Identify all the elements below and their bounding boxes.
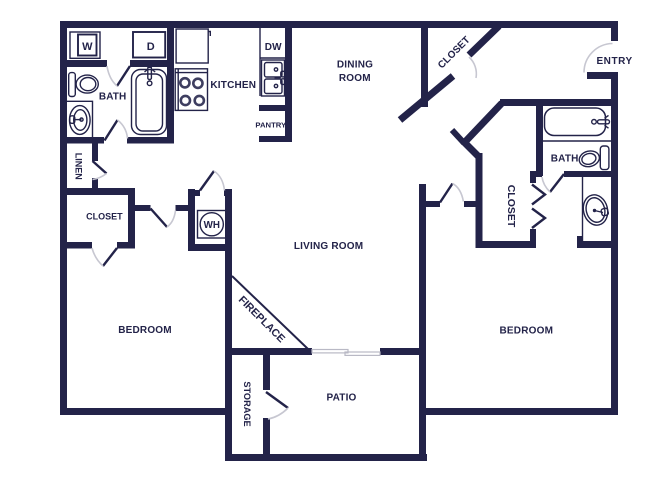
- svg-text:ENTRY: ENTRY: [596, 56, 632, 67]
- svg-text:CLOSET: CLOSET: [505, 185, 517, 228]
- svg-text:LINEN: LINEN: [74, 153, 84, 180]
- svg-text:DW: DW: [265, 42, 282, 53]
- svg-text:LIVING ROOM: LIVING ROOM: [294, 241, 363, 252]
- svg-text:CLOSET: CLOSET: [86, 212, 123, 222]
- svg-text:DINING: DINING: [337, 60, 373, 71]
- svg-text:ROOM: ROOM: [339, 73, 371, 84]
- svg-text:BEDROOM: BEDROOM: [499, 326, 553, 337]
- svg-text:PANTRY: PANTRY: [255, 120, 286, 129]
- svg-text:W: W: [82, 41, 93, 53]
- svg-text:WH: WH: [204, 220, 220, 231]
- svg-text:D: D: [147, 41, 155, 53]
- svg-text:BATH: BATH: [551, 154, 579, 165]
- svg-text:BATH: BATH: [99, 92, 126, 103]
- svg-text:STORAGE: STORAGE: [242, 381, 252, 426]
- svg-text:PATIO: PATIO: [326, 393, 356, 404]
- svg-text:KITCHEN: KITCHEN: [210, 80, 256, 91]
- svg-text:BEDROOM: BEDROOM: [118, 325, 172, 336]
